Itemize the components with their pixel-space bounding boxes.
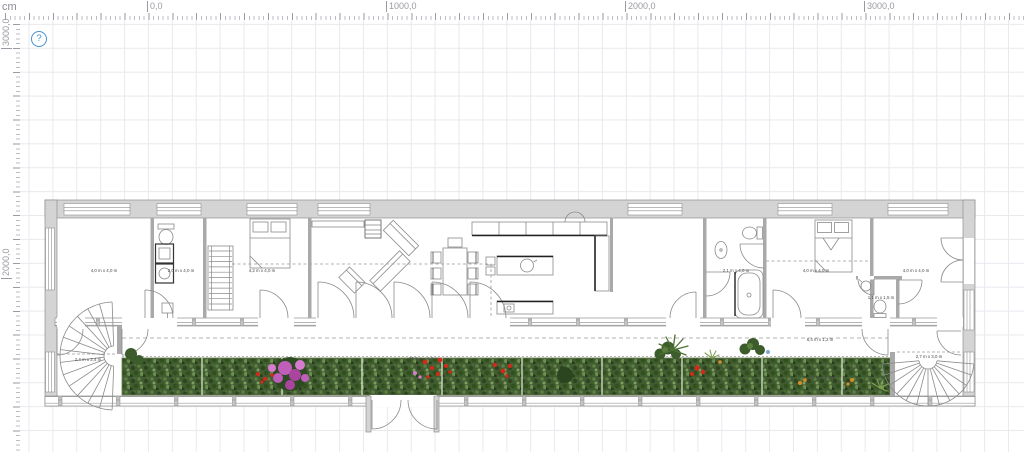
garden-facade-glass-wall xyxy=(45,396,975,406)
floorplan-app: { "ruler": { "unit": "cm", "top_labels":… xyxy=(0,0,1024,452)
label-bedroom-right: 4,0 m x 4,0 m xyxy=(803,268,830,273)
label-utility: 2,0 m x 4,0 m xyxy=(168,268,195,273)
label-planter-right: 6,4 m x 1,2 m xyxy=(809,375,836,380)
wc-door-opening xyxy=(858,276,874,280)
label-wc: 1,1 m x 1,5 m xyxy=(868,295,895,300)
label-bedroom-far-right: 4,0 m x 4,0 m xyxy=(903,268,930,273)
label-bathroom: 2,1 m x 4,0 m xyxy=(723,268,750,273)
label-spiral-right: 2,7 m x 3,0 m xyxy=(916,354,943,359)
staircase-straight[interactable] xyxy=(208,246,233,310)
label-bedroom-left: 4,0 m x 4,0 m xyxy=(91,268,118,273)
label-spiral-left: 2,4 m x 2,4 m xyxy=(75,357,102,362)
label-bedroom-mid: 4,2 m x 4,0 m xyxy=(249,268,276,273)
ruler-unit-label: cm xyxy=(2,1,19,13)
label-terrace-right: 6,4 m x 1,2 m xyxy=(807,337,834,342)
floorplan-canvas[interactable]: 4,0 m x 4,0 m 2,0 m x 4,0 m 4,2 m x 4,0 … xyxy=(0,0,1024,452)
help-icon[interactable]: ? xyxy=(31,31,47,47)
